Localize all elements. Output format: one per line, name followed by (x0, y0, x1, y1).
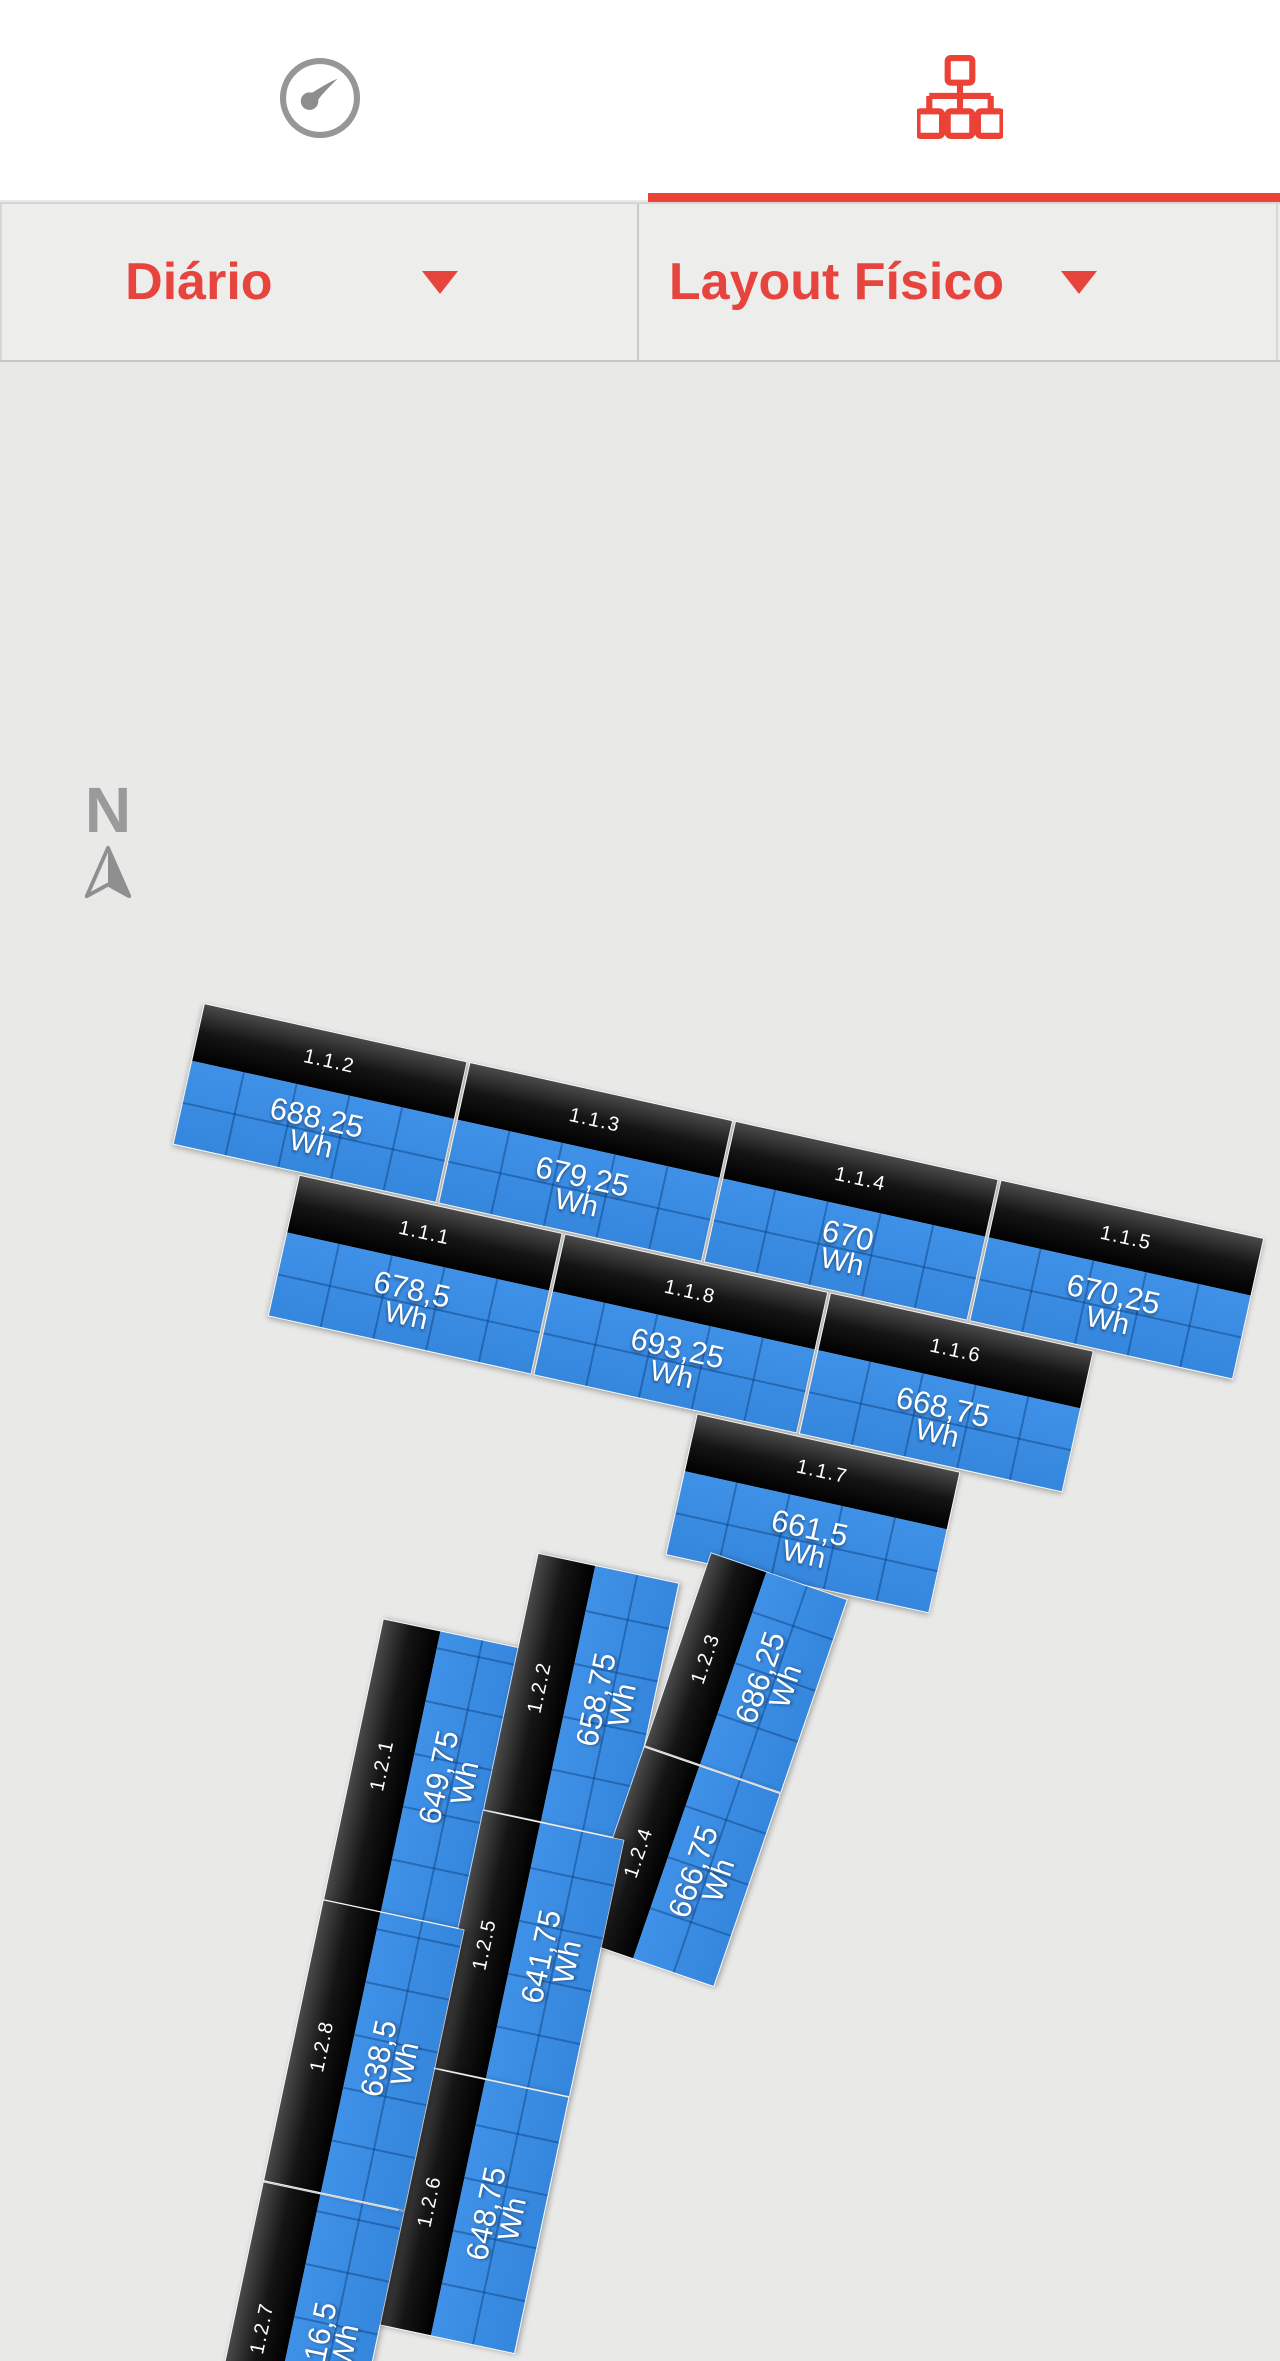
panel-id-label: 1.1.4 (833, 1162, 889, 1196)
hierarchy-icon (917, 55, 1003, 146)
tab-energy-gauge[interactable] (0, 0, 640, 200)
gauge-icon (276, 54, 364, 147)
panel-id-label: 1.2.2 (523, 1660, 556, 1716)
period-dropdown[interactable]: Diário (0, 204, 639, 360)
panel-id-label: 1.2.3 (686, 1631, 725, 1688)
panel-id-label: 1.2.5 (468, 1917, 501, 1973)
panel-1.1.2[interactable]: 1.1.2688,25Wh (173, 1003, 468, 1203)
panel-id-label: 1.1.8 (662, 1275, 718, 1309)
compass-arrow-icon (76, 844, 140, 907)
solar-layout-screen: Diário Layout Físico N 1.1.2688,25Wh1.1.… (0, 0, 1280, 2361)
tab-bar (0, 0, 1280, 200)
filter-bar: Diário Layout Físico (0, 202, 1280, 362)
panel-1.2.7[interactable]: 1.2.7616,5Wh (203, 2181, 405, 2361)
layout-map[interactable]: N 1.1.2688,25Wh1.1.3679,25Wh1.1.4670Wh1.… (0, 362, 1280, 2361)
period-dropdown-label: Diário (2, 252, 396, 312)
panel-id-label: 1.1.5 (1098, 1221, 1154, 1255)
view-dropdown[interactable]: Layout Físico (639, 204, 1278, 360)
panel-id-label: 1.1.6 (928, 1334, 984, 1368)
chevron-down-icon (1034, 271, 1123, 294)
compass: N (76, 778, 140, 907)
active-tab-indicator (648, 193, 1280, 202)
panel-id-label: 1.2.4 (619, 1825, 658, 1882)
panel-id-label: 1.1.1 (397, 1216, 453, 1250)
panel-id-label: 1.2.7 (246, 2301, 279, 2357)
compass-north-label: N (76, 778, 140, 842)
panel-id-label: 1.2.6 (413, 2174, 446, 2230)
panel-array-top: 1.1.2688,25Wh1.1.3679,25Wh1.1.4670Wh1.1.… (107, 1003, 1278, 1680)
panel-id-label: 1.1.2 (301, 1045, 357, 1079)
panel-id-label: 1.2.8 (306, 2019, 339, 2075)
panel-id-label: 1.1.3 (567, 1104, 623, 1138)
view-dropdown-label: Layout Físico (639, 252, 1034, 312)
chevron-down-icon (396, 271, 485, 294)
tab-physical-layout[interactable] (640, 0, 1280, 200)
panel-id-label: 1.2.1 (366, 1738, 399, 1794)
panel-id-label: 1.1.7 (794, 1455, 850, 1489)
